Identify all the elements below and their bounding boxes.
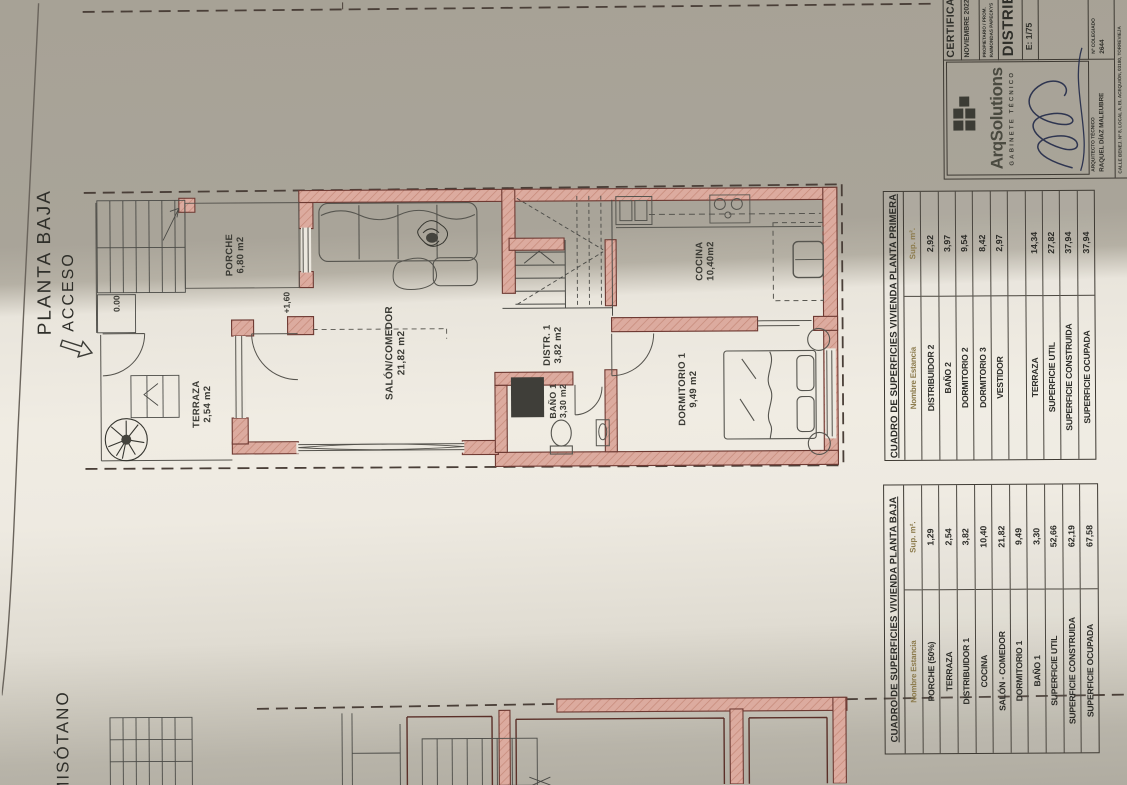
access-arrow-icon bbox=[59, 335, 94, 360]
windows bbox=[233, 224, 836, 454]
bathroom-door-arc bbox=[575, 385, 602, 415]
table-row: COCINA10,40 bbox=[975, 485, 994, 753]
interior-stairs-icon bbox=[502, 196, 613, 317]
fridge-outline bbox=[773, 222, 823, 300]
room-label-distribuidor: DISTR. 1 3,82 m2 bbox=[543, 324, 565, 366]
photographed-plan-sheet: PLANTA BAJA ACCESO MISÓTANO 0.00 +1,60 P… bbox=[0, 0, 1127, 785]
logo-pixel-icon bbox=[965, 120, 975, 130]
table-row: SUPERFICIE UTIL52,66 bbox=[1045, 484, 1064, 752]
level-porch-label: +1,60 bbox=[282, 292, 292, 314]
col-header-name: Nombre Estancia bbox=[904, 295, 921, 460]
logo-pixel-icon bbox=[953, 109, 963, 119]
kitchen-counter bbox=[616, 194, 824, 301]
table-title: CUADRO DE SUPERFICIES VIVIENDA PLANTA BA… bbox=[884, 485, 906, 753]
room-area: 21,82 m2 bbox=[395, 306, 407, 400]
level-ground-label: 0.00 bbox=[113, 295, 123, 312]
room-area: 9,49 m2 bbox=[689, 353, 700, 426]
table-title: CUADRO DE SUPERFICIES VIVIENDA PLANTA PR… bbox=[884, 192, 906, 460]
date-label: NOVIEMBRE 2022 bbox=[964, 0, 971, 58]
room-area: 3,82 m2 bbox=[554, 324, 565, 366]
table-header-row: Nombre Estancia Sup. m². bbox=[904, 485, 923, 753]
tree-icon bbox=[105, 419, 147, 461]
room-label-terraza: TERRAZA 2,54 m2 bbox=[192, 380, 214, 428]
room-label-dormitorio: DORMITORIO 1 9,49 m2 bbox=[678, 353, 700, 426]
table-row: DORMITORIO 38,42 bbox=[973, 191, 992, 459]
floor-title: PLANTA BAJA bbox=[34, 189, 57, 335]
exterior-walls bbox=[179, 187, 839, 468]
title-block: CERTIFICADO NOVIEMBRE 2022 PROPIETARIO /… bbox=[943, 0, 1127, 180]
basement-title: MISÓTANO bbox=[53, 690, 73, 785]
table-row: TERRAZA14,34 bbox=[1025, 191, 1044, 459]
paper-edge bbox=[0, 3, 43, 695]
areas-table-planta-baja: CUADRO DE SUPERFICIES VIVIENDA PLANTA BA… bbox=[883, 483, 1100, 754]
signature-icon bbox=[1012, 41, 1098, 177]
bed-icon bbox=[724, 350, 817, 439]
table-row: SUPERFICIE CONSTRUIDA62,19 bbox=[1063, 484, 1082, 752]
table-row: VESTIDOR2,97 bbox=[991, 191, 1010, 459]
table-row: SUPERFICIE OCUPADA67,58 bbox=[1080, 484, 1098, 752]
basement-plan bbox=[110, 697, 848, 785]
address-label: CALLE BENEJ. Nº 8, LOCAL A, EL ACEQUIÓN,… bbox=[1117, 0, 1123, 174]
logo-pixel-icon bbox=[953, 121, 963, 131]
owner-label: PROPIETARIO / PROM. RAIMONDAS PAPECKYS bbox=[981, 0, 996, 57]
table-row: DISTRIBUIDOR 22,92 bbox=[921, 192, 940, 460]
access-label: ACCESO bbox=[60, 252, 79, 332]
shower-icon bbox=[511, 377, 544, 417]
company-name: ArqSolutions bbox=[987, 62, 1008, 174]
room-label-porche: PORCHE 6,80 m2 bbox=[225, 234, 247, 277]
table-row: DORMITORIO 29,54 bbox=[956, 191, 975, 459]
toilet-icon bbox=[550, 420, 572, 454]
table-row: DISTRIBUIDOR 13,82 bbox=[957, 485, 976, 753]
overhang-dashed-line bbox=[313, 329, 447, 340]
table-row: SUPERFICIE CONSTRUIDA37,94 bbox=[1060, 191, 1079, 459]
table-header-row: Nombre Estancia Sup. m². bbox=[904, 192, 923, 460]
table-row: BAÑO 13,30 bbox=[1028, 485, 1047, 753]
plant-icon bbox=[418, 221, 448, 247]
room-name: BAÑO 1 bbox=[548, 384, 558, 419]
table-grid: Nombre Estancia Sup. m². DISTRIBUIDOR 22… bbox=[904, 191, 1096, 460]
room-label-cocina: COCINA 10,40m2 bbox=[695, 241, 717, 281]
table-row: SALÓN - COMEDOR21,82 bbox=[992, 485, 1011, 753]
table-row: DORMITORIO 19,49 bbox=[1010, 485, 1029, 753]
main-entry-door-arc bbox=[252, 334, 298, 380]
bedroom-door-arc bbox=[612, 333, 654, 375]
table-row: TERRAZA2,54 bbox=[939, 485, 958, 753]
sofa-icon bbox=[319, 203, 478, 287]
areas-table-planta-primera: CUADRO DE SUPERFICIES VIVIENDA PLANTA PR… bbox=[883, 190, 1097, 461]
logo-pixel-icon bbox=[959, 97, 969, 107]
col-header-sup: Sup. m². bbox=[904, 192, 921, 296]
col-header-sup: Sup. m². bbox=[904, 485, 921, 589]
room-area: 2,54 m2 bbox=[203, 380, 214, 428]
room-area: 6,80 m2 bbox=[236, 234, 247, 277]
drawing-sheet: PLANTA BAJA ACCESO MISÓTANO 0.00 +1,60 P… bbox=[0, 0, 1127, 785]
table-grid: Nombre Estancia Sup. m². PORCHE (50%)1,2… bbox=[904, 484, 1099, 753]
room-label-salon: SALÓN/COMEDOR 21,82 m2 bbox=[384, 306, 408, 400]
table-row: SUPERFICIE UTIL27,82 bbox=[1043, 191, 1062, 459]
terrace-steps-icon bbox=[131, 375, 179, 417]
room-area: 10,40m2 bbox=[706, 241, 717, 281]
table-row: SUPERFICIE OCUPADA37,94 bbox=[1077, 191, 1095, 459]
certificado-label: CERTIFICADO bbox=[944, 0, 956, 58]
room-area: 3,30 m2 bbox=[558, 383, 568, 418]
street-door-arc bbox=[103, 334, 145, 376]
col-header-name: Nombre Estancia bbox=[905, 589, 923, 754]
room-name: SALÓN/COMEDOR bbox=[384, 306, 396, 400]
exterior-stairs-icon bbox=[97, 200, 186, 333]
room-label-bano: BAÑO 1 3,30 m2 bbox=[548, 383, 568, 418]
table-row: BAÑO 23,97 bbox=[938, 192, 957, 460]
table-row bbox=[1008, 191, 1027, 459]
table-row: PORCHE (50%)1,29 bbox=[922, 485, 941, 753]
coffee-table-icon bbox=[393, 258, 437, 290]
logo-pixel-icon bbox=[965, 108, 975, 118]
